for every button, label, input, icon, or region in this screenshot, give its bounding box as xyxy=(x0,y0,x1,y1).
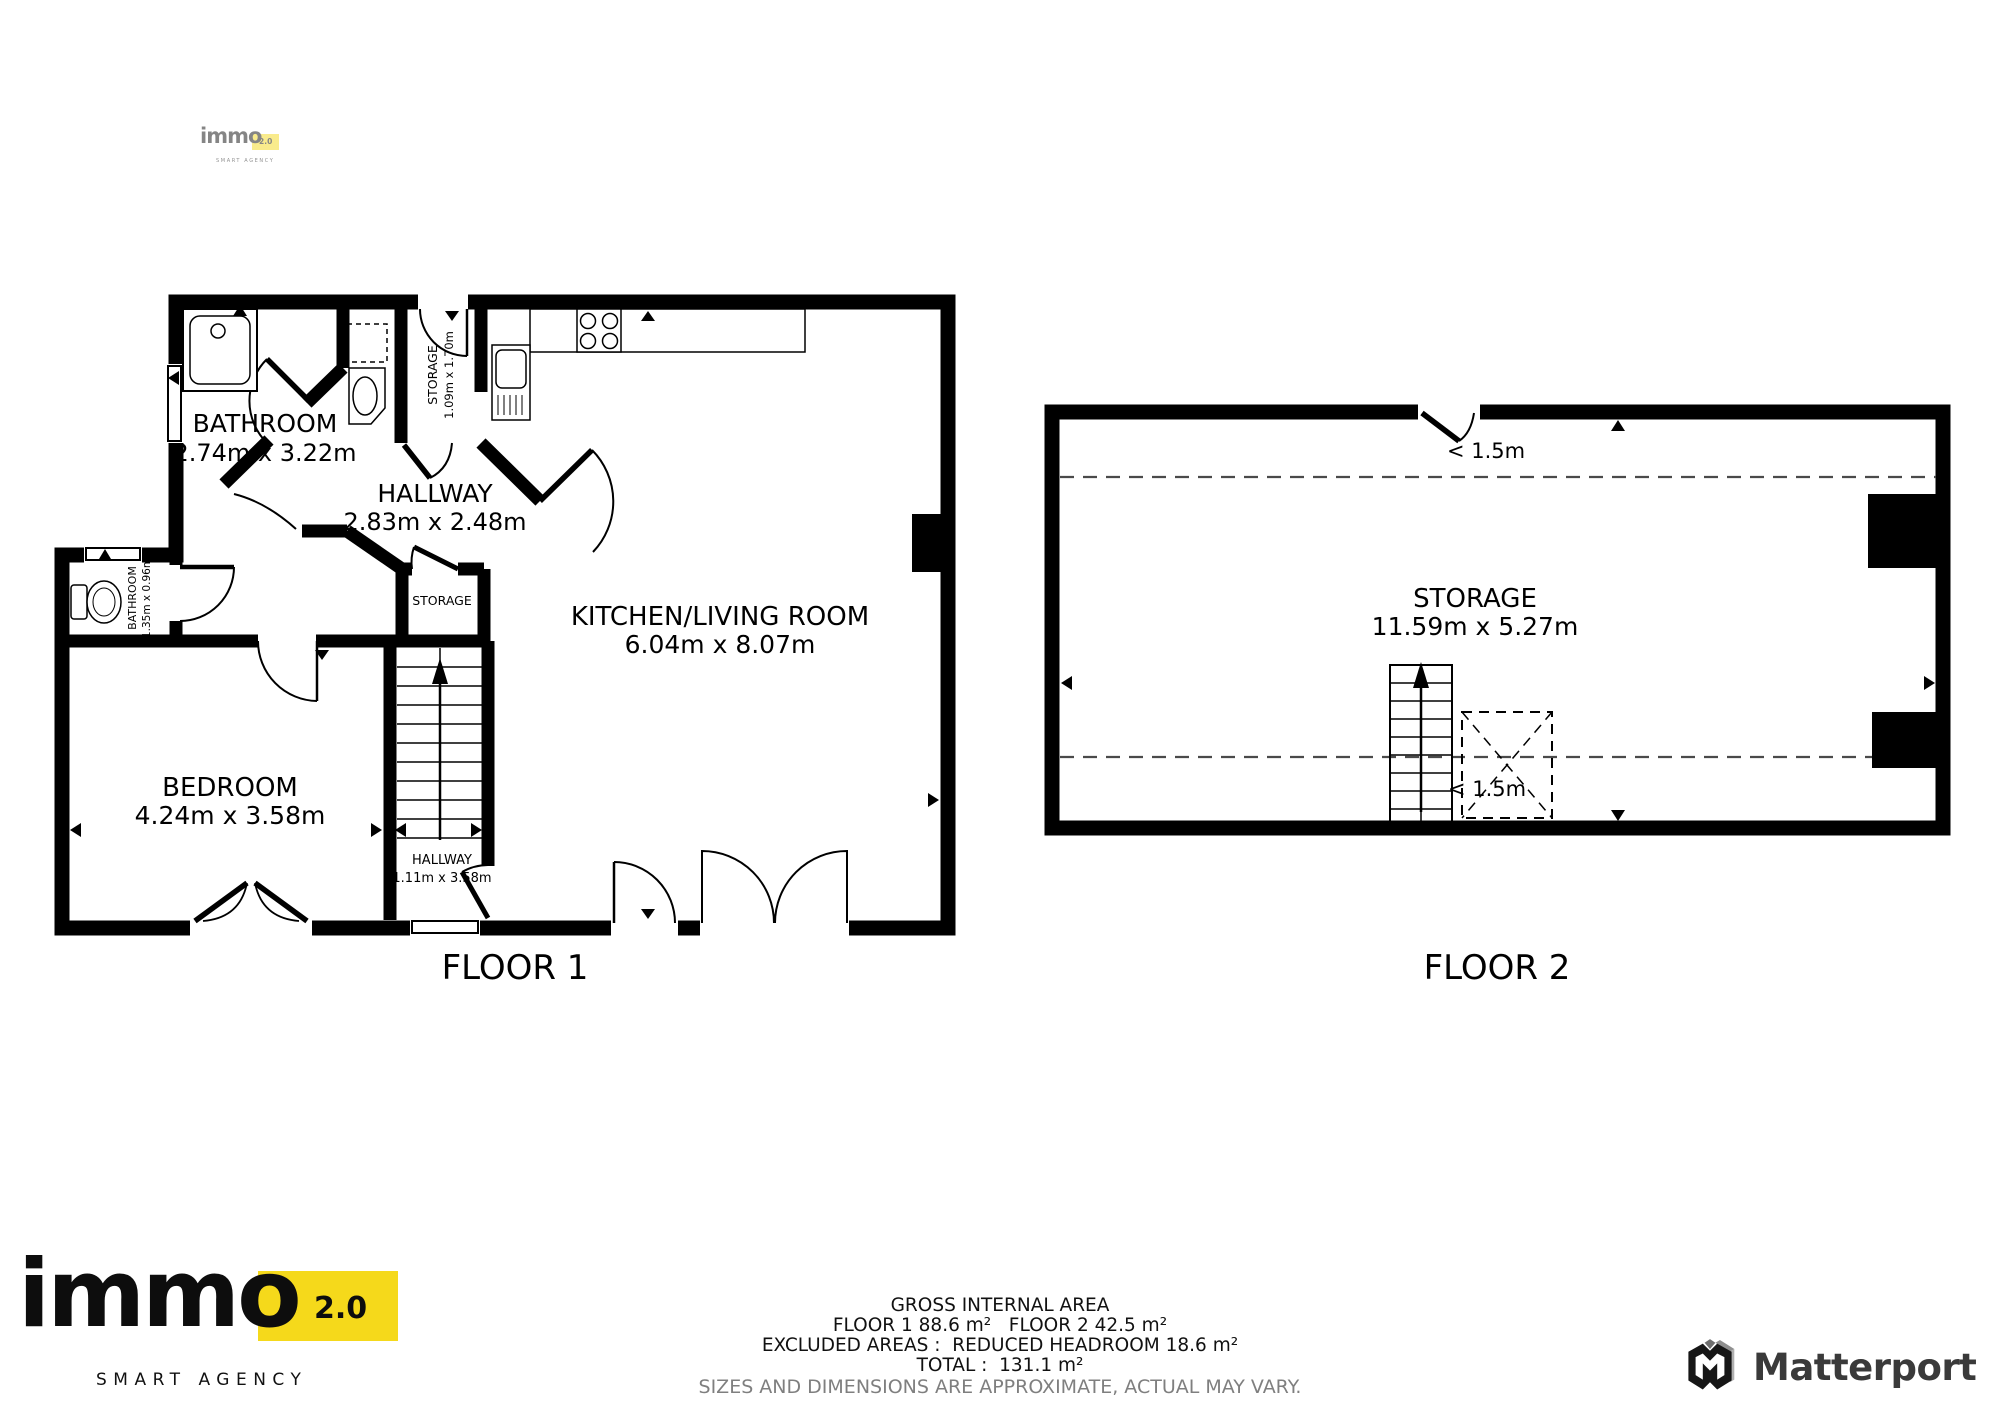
bedroom-dims: 4.24m x 3.58m xyxy=(135,801,326,830)
hallway-label: HALLWAY xyxy=(377,479,493,508)
kitchen-living-label: KITCHEN/LIVING ROOM xyxy=(571,602,869,632)
matterport-m-icon xyxy=(1683,1338,1737,1396)
storage-top-label: STORAGE xyxy=(425,345,440,405)
bathroom-small-dims: 1.35m x 0.96m xyxy=(141,558,153,638)
shower-icon xyxy=(183,309,257,391)
kitchen-living-dims: 6.04m x 8.07m xyxy=(625,630,816,659)
bedroom-label: BEDROOM xyxy=(162,773,298,803)
brand-version-text: 2.0 xyxy=(314,1291,367,1326)
floor1-plan: BATHROOM 2.74m x 3.22m HALLWAY 2.83m x 2… xyxy=(62,293,948,988)
storage-top-dims: 1.09m x 1.70m xyxy=(442,331,456,419)
floor2-plan: < 1.5m STORAGE 11.59m x 5.27m < 1.5m FLO… xyxy=(1052,403,1943,988)
chimney-block xyxy=(1872,712,1936,768)
storage-dims: 11.59m x 5.27m xyxy=(1372,612,1579,641)
headroom-top-label: < 1.5m xyxy=(1447,439,1525,463)
bathroom-dims: 2.74m x 3.22m xyxy=(173,439,356,467)
bathroom-label: BATHROOM xyxy=(193,409,338,438)
floorplan-page: { "header_watermark": {"brand": "immo", … xyxy=(0,0,2000,1414)
hallway-lower-label: HALLWAY xyxy=(412,853,472,868)
floor2-title: FLOOR 2 xyxy=(1424,948,1571,988)
sink-icon xyxy=(492,345,530,420)
brand-logo: immo 2.0 SMART AGENCY xyxy=(18,1258,398,1398)
brand-text: immo xyxy=(18,1240,299,1349)
hallway-lower-dims: 1.11m x 3.58m xyxy=(392,871,491,886)
brand-tagline: SMART AGENCY xyxy=(96,1370,307,1390)
hallway-dims: 2.83m x 2.48m xyxy=(343,508,526,536)
chimney-block xyxy=(912,514,948,572)
bathroom-small-label: BATHROOM xyxy=(126,566,139,630)
chimney-block xyxy=(1868,494,1936,568)
headroom-bottom-label: < 1.5m xyxy=(1448,777,1526,801)
toilet-icon xyxy=(71,581,121,623)
storage-label: STORAGE xyxy=(1413,584,1537,614)
matterport-text: Matterport xyxy=(1753,1346,1976,1389)
matterport-logo: Matterport xyxy=(1683,1338,1976,1396)
stove-icon xyxy=(577,309,621,352)
floorplan-canvas: BATHROOM 2.74m x 3.22m HALLWAY 2.83m x 2… xyxy=(0,0,2000,1414)
storage-closet-label: STORAGE xyxy=(412,593,472,608)
floor1-title: FLOOR 1 xyxy=(442,948,589,988)
